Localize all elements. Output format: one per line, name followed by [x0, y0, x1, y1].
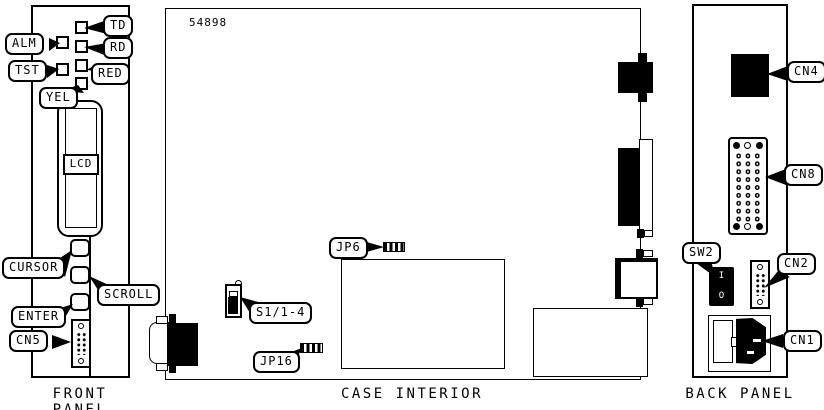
connector-screw-hole	[757, 299, 763, 305]
power-pin-slot	[753, 339, 761, 342]
connector-pin-hole	[744, 223, 751, 230]
enter-button	[70, 293, 90, 311]
cursor-callout: CURSOR	[2, 257, 65, 279]
mounting-tab	[636, 297, 643, 307]
yel-callout: YEL	[39, 87, 78, 109]
cn5-callout: CN5	[9, 330, 48, 352]
edge-connector-block	[618, 148, 640, 226]
td-callout: TD	[103, 15, 133, 37]
yel-led	[75, 77, 88, 90]
mounting-tab	[644, 230, 653, 237]
mounting-tab	[169, 314, 176, 324]
cn4-callout: CN4	[787, 61, 824, 83]
scroll-callout: SCROLL	[97, 284, 160, 306]
mounting-tab	[636, 249, 643, 259]
connector-screw-hole	[733, 223, 740, 230]
connector-screw-hole	[78, 358, 84, 364]
main-module-block	[341, 259, 505, 369]
red-led	[75, 59, 88, 72]
rear-port-connector	[615, 258, 658, 299]
mounting-tab	[643, 250, 653, 257]
cn8-callout: CN8	[784, 164, 823, 186]
connector-pins	[755, 273, 765, 296]
cursor-button	[70, 239, 90, 257]
cn2-callout: CN2	[777, 253, 816, 275]
lcd-label: LCD	[63, 154, 99, 175]
mounting-tab	[169, 363, 176, 373]
scroll-button	[70, 266, 90, 284]
cn4-connector	[731, 54, 769, 97]
hardware-diagram: LCD FRONT PANEL 54898 CASE INTERIOR	[0, 0, 824, 410]
edge-connector-bracket	[639, 139, 653, 234]
jp6-callout: JP6	[329, 237, 368, 259]
power-supply-block	[533, 308, 648, 377]
cn1-callout: CN1	[783, 330, 822, 352]
line-transformer	[618, 62, 653, 93]
tst-led	[56, 63, 69, 76]
mounting-tab	[156, 363, 168, 371]
power-pin-slot	[747, 351, 754, 354]
figure-number: 54898	[189, 16, 227, 29]
rd-led	[75, 40, 88, 53]
switch-off-marking: O	[709, 292, 734, 301]
connector-pins	[734, 152, 762, 223]
jp16-jumper-block	[300, 343, 323, 353]
sw2-power-switch: I O	[709, 267, 734, 306]
jp16-callout: JP16	[253, 351, 300, 373]
front-panel-caption: FRONT PANEL	[20, 386, 140, 410]
cn2-db9-connector	[750, 260, 770, 309]
iec-power-inlet	[736, 318, 766, 364]
sw2-callout: SW2	[682, 242, 721, 264]
jp6-jumper-block	[383, 242, 405, 252]
cn5-db9-connector	[71, 319, 91, 368]
switch-on-marking: I	[709, 272, 734, 281]
connector-screw-hole	[78, 323, 84, 329]
connector-screw-hole	[756, 142, 763, 149]
td-led	[75, 21, 88, 34]
red-callout: RED	[91, 63, 130, 85]
front-connector-block	[167, 323, 198, 366]
enter-callout: ENTER	[11, 306, 66, 328]
rd-callout: RD	[103, 37, 133, 59]
connector-pins	[76, 332, 86, 355]
connector-screw-hole	[757, 264, 763, 270]
s1-callout: S1/1-4	[249, 302, 312, 324]
connector-screw-hole	[733, 142, 740, 149]
transformer-lead	[638, 92, 647, 102]
cn8-db25-connector	[728, 137, 768, 235]
mounting-tab	[156, 316, 168, 324]
case-interior-caption: CASE INTERIOR	[332, 386, 492, 402]
mounting-tab	[637, 229, 644, 238]
fuse-holder	[713, 320, 733, 363]
back-panel-caption: BACK PANEL	[680, 386, 800, 402]
tst-callout: TST	[8, 60, 47, 82]
alm-callout: ALM	[5, 33, 44, 55]
alm-led	[56, 36, 69, 49]
connector-pin-hole	[744, 142, 751, 149]
dip-switch-levers	[228, 297, 238, 314]
connector-screw-hole	[756, 223, 763, 230]
mounting-tab	[643, 298, 653, 305]
